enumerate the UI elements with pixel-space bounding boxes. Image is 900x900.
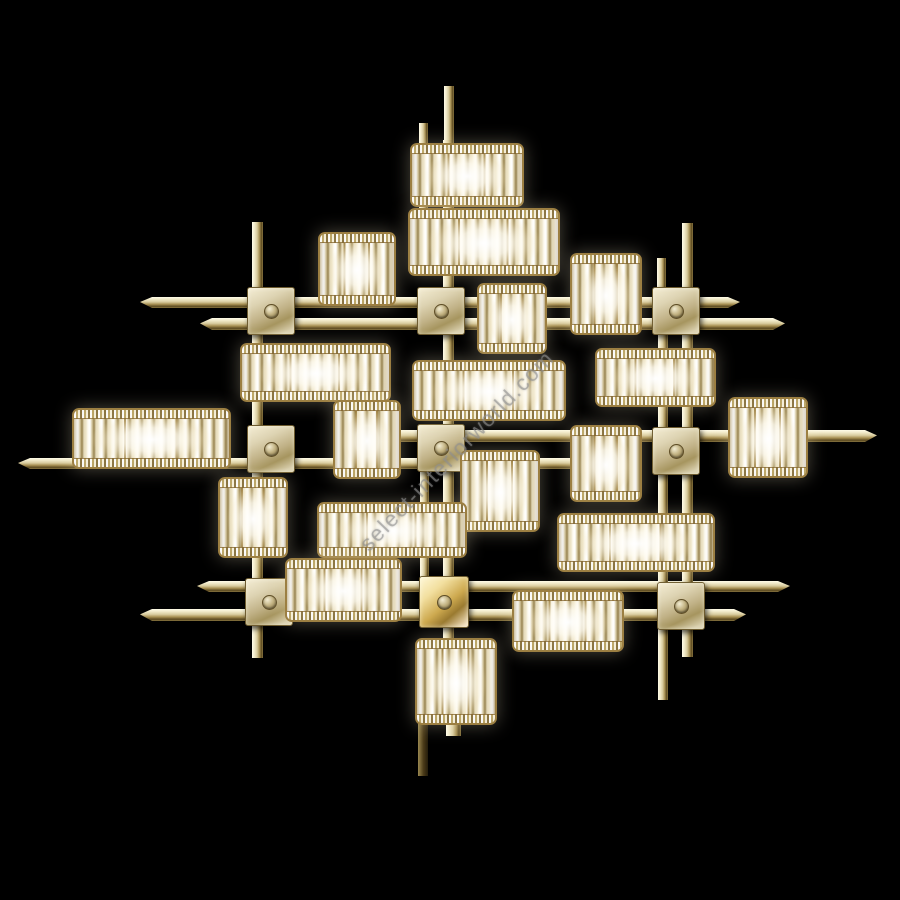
crystal-shade bbox=[477, 283, 547, 354]
pendant-bar bbox=[418, 718, 428, 776]
crystal-shade bbox=[408, 208, 560, 276]
screw bbox=[669, 444, 684, 459]
crystal-shade bbox=[218, 477, 288, 558]
mounting-plate bbox=[419, 576, 469, 628]
crystal-shade bbox=[240, 343, 391, 402]
lamp-product-photo: select-interiorworld.com bbox=[0, 0, 900, 900]
mounting-plate bbox=[657, 582, 705, 630]
screw bbox=[437, 595, 452, 610]
crystal-shade bbox=[318, 232, 396, 306]
crystal-shade bbox=[557, 513, 715, 572]
vertical-rod bbox=[444, 86, 454, 146]
mounting-plate bbox=[247, 425, 295, 473]
screw bbox=[262, 595, 277, 610]
crystal-shade bbox=[512, 590, 624, 652]
crystal-shade bbox=[728, 397, 808, 478]
mounting-plate bbox=[417, 287, 465, 335]
screw bbox=[669, 304, 684, 319]
mounting-plate bbox=[652, 287, 700, 335]
mounting-plate bbox=[417, 424, 465, 472]
screw bbox=[674, 599, 689, 614]
crystal-shade bbox=[460, 450, 540, 532]
crystal-shade bbox=[317, 502, 467, 558]
crystal-shade bbox=[72, 408, 231, 469]
screw bbox=[434, 441, 449, 456]
screw bbox=[264, 442, 279, 457]
screw bbox=[434, 304, 449, 319]
crystal-shade bbox=[333, 400, 401, 479]
crystal-shade bbox=[570, 425, 642, 502]
crystal-shade bbox=[285, 558, 402, 622]
vertical-rod bbox=[657, 258, 666, 290]
screw bbox=[264, 304, 279, 319]
crystal-shade bbox=[410, 143, 524, 207]
mounting-plate bbox=[652, 427, 700, 475]
crystal-shade bbox=[570, 253, 642, 335]
crystal-shade bbox=[595, 348, 716, 407]
crystal-shade bbox=[412, 360, 566, 421]
mounting-plate bbox=[247, 287, 295, 335]
crystal-shade bbox=[415, 638, 497, 725]
